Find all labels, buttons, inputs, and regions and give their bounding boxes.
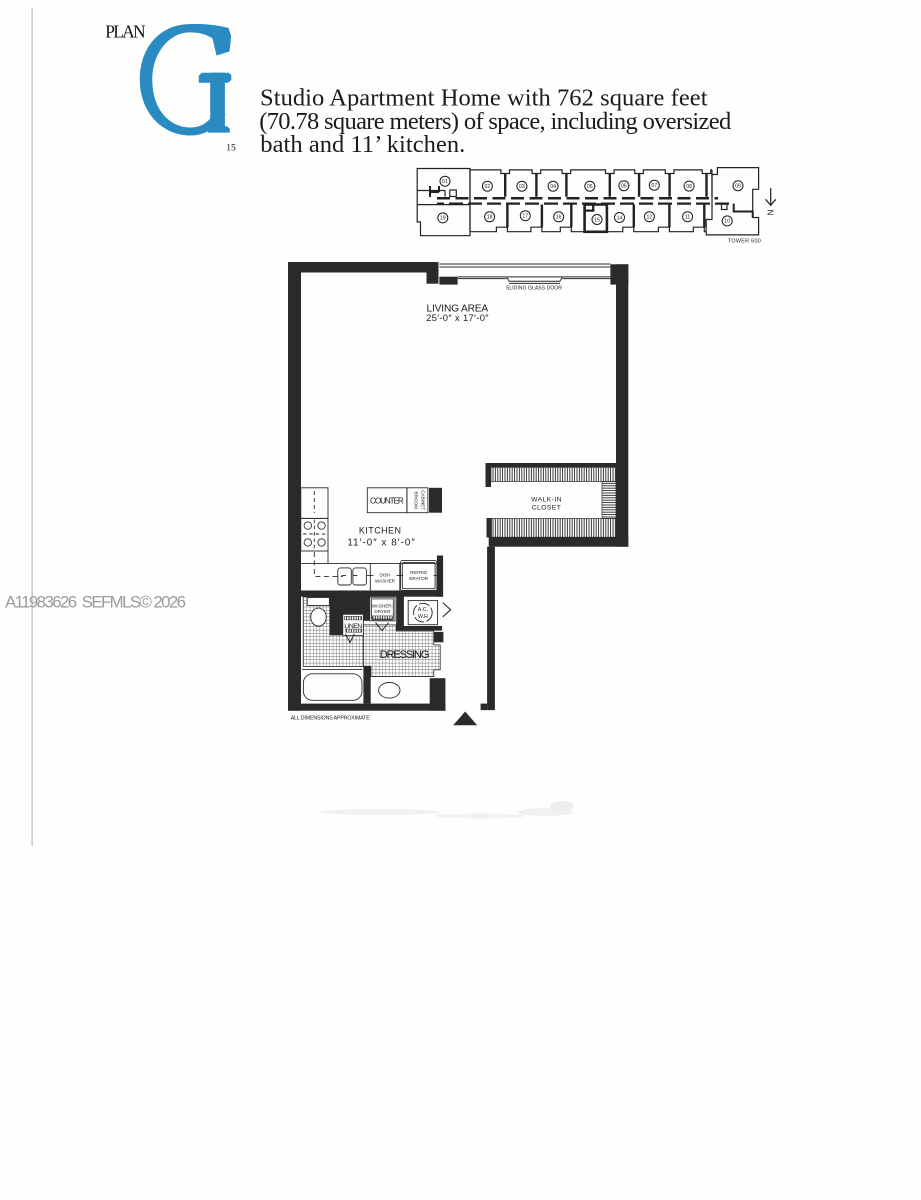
svg-text:A11983626 SEFMLS© 2026: A11983626 SEFMLS© 2026 bbox=[5, 593, 186, 612]
svg-text:SLIDING GLASS DOOR: SLIDING GLASS DOOR bbox=[506, 286, 562, 292]
svg-text:02: 02 bbox=[485, 184, 491, 190]
svg-text:ALL DIMENSIONS APPROXIMATE: ALL DIMENSIONS APPROXIMATE bbox=[291, 716, 371, 722]
svg-text:WASHER: WASHER bbox=[375, 579, 396, 584]
svg-text:04: 04 bbox=[550, 184, 556, 190]
svg-text:09: 09 bbox=[735, 184, 741, 190]
svg-text:16: 16 bbox=[556, 215, 562, 221]
svg-text:WASHER-: WASHER- bbox=[372, 604, 394, 609]
svg-text:COUNTER: COUNTER bbox=[370, 496, 404, 505]
svg-text:LINEN: LINEN bbox=[344, 623, 362, 630]
svg-text:14: 14 bbox=[617, 215, 623, 221]
svg-text:25′-0″ x 17′-0″: 25′-0″ x 17′-0″ bbox=[426, 312, 489, 323]
svg-text:TOWER 600: TOWER 600 bbox=[728, 239, 761, 245]
svg-text:ERATOR: ERATOR bbox=[409, 576, 428, 581]
svg-text:KITCHEN: KITCHEN bbox=[359, 526, 401, 536]
svg-text:18: 18 bbox=[487, 215, 493, 221]
svg-text:07: 07 bbox=[651, 183, 657, 189]
svg-text:03: 03 bbox=[519, 184, 525, 190]
svg-text:W.H: W.H bbox=[418, 614, 428, 620]
svg-text:17: 17 bbox=[522, 214, 528, 220]
svg-text:11′-0″ x 8′-0″: 11′-0″ x 8′-0″ bbox=[347, 538, 415, 549]
svg-text:15: 15 bbox=[226, 143, 236, 153]
svg-text:01: 01 bbox=[442, 179, 448, 185]
svg-text:05: 05 bbox=[587, 184, 593, 190]
svg-text:19: 19 bbox=[440, 216, 446, 222]
svg-text:WALK-IN: WALK-IN bbox=[531, 497, 562, 504]
svg-text:N: N bbox=[766, 210, 775, 216]
svg-text:bath and 11’ kitchen.: bath and 11’ kitchen. bbox=[260, 131, 465, 158]
svg-text:11: 11 bbox=[685, 215, 690, 221]
svg-text:CABINET: CABINET bbox=[421, 490, 426, 510]
svg-text:DRYER: DRYER bbox=[374, 609, 391, 614]
svg-text:12: 12 bbox=[647, 215, 653, 221]
svg-text:15: 15 bbox=[594, 217, 600, 223]
svg-text:A.C.: A.C. bbox=[418, 607, 428, 613]
svg-text:CLOSET: CLOSET bbox=[532, 504, 562, 511]
svg-text:DISH: DISH bbox=[380, 573, 391, 578]
svg-text:PLAN: PLAN bbox=[105, 22, 148, 42]
svg-text:08: 08 bbox=[686, 184, 692, 190]
svg-text:06: 06 bbox=[621, 184, 627, 190]
svg-text:DRESSING: DRESSING bbox=[380, 649, 430, 661]
svg-text:REFRIG: REFRIG bbox=[410, 570, 428, 575]
svg-text:BROOM: BROOM bbox=[414, 492, 419, 510]
svg-text:10: 10 bbox=[724, 219, 730, 225]
